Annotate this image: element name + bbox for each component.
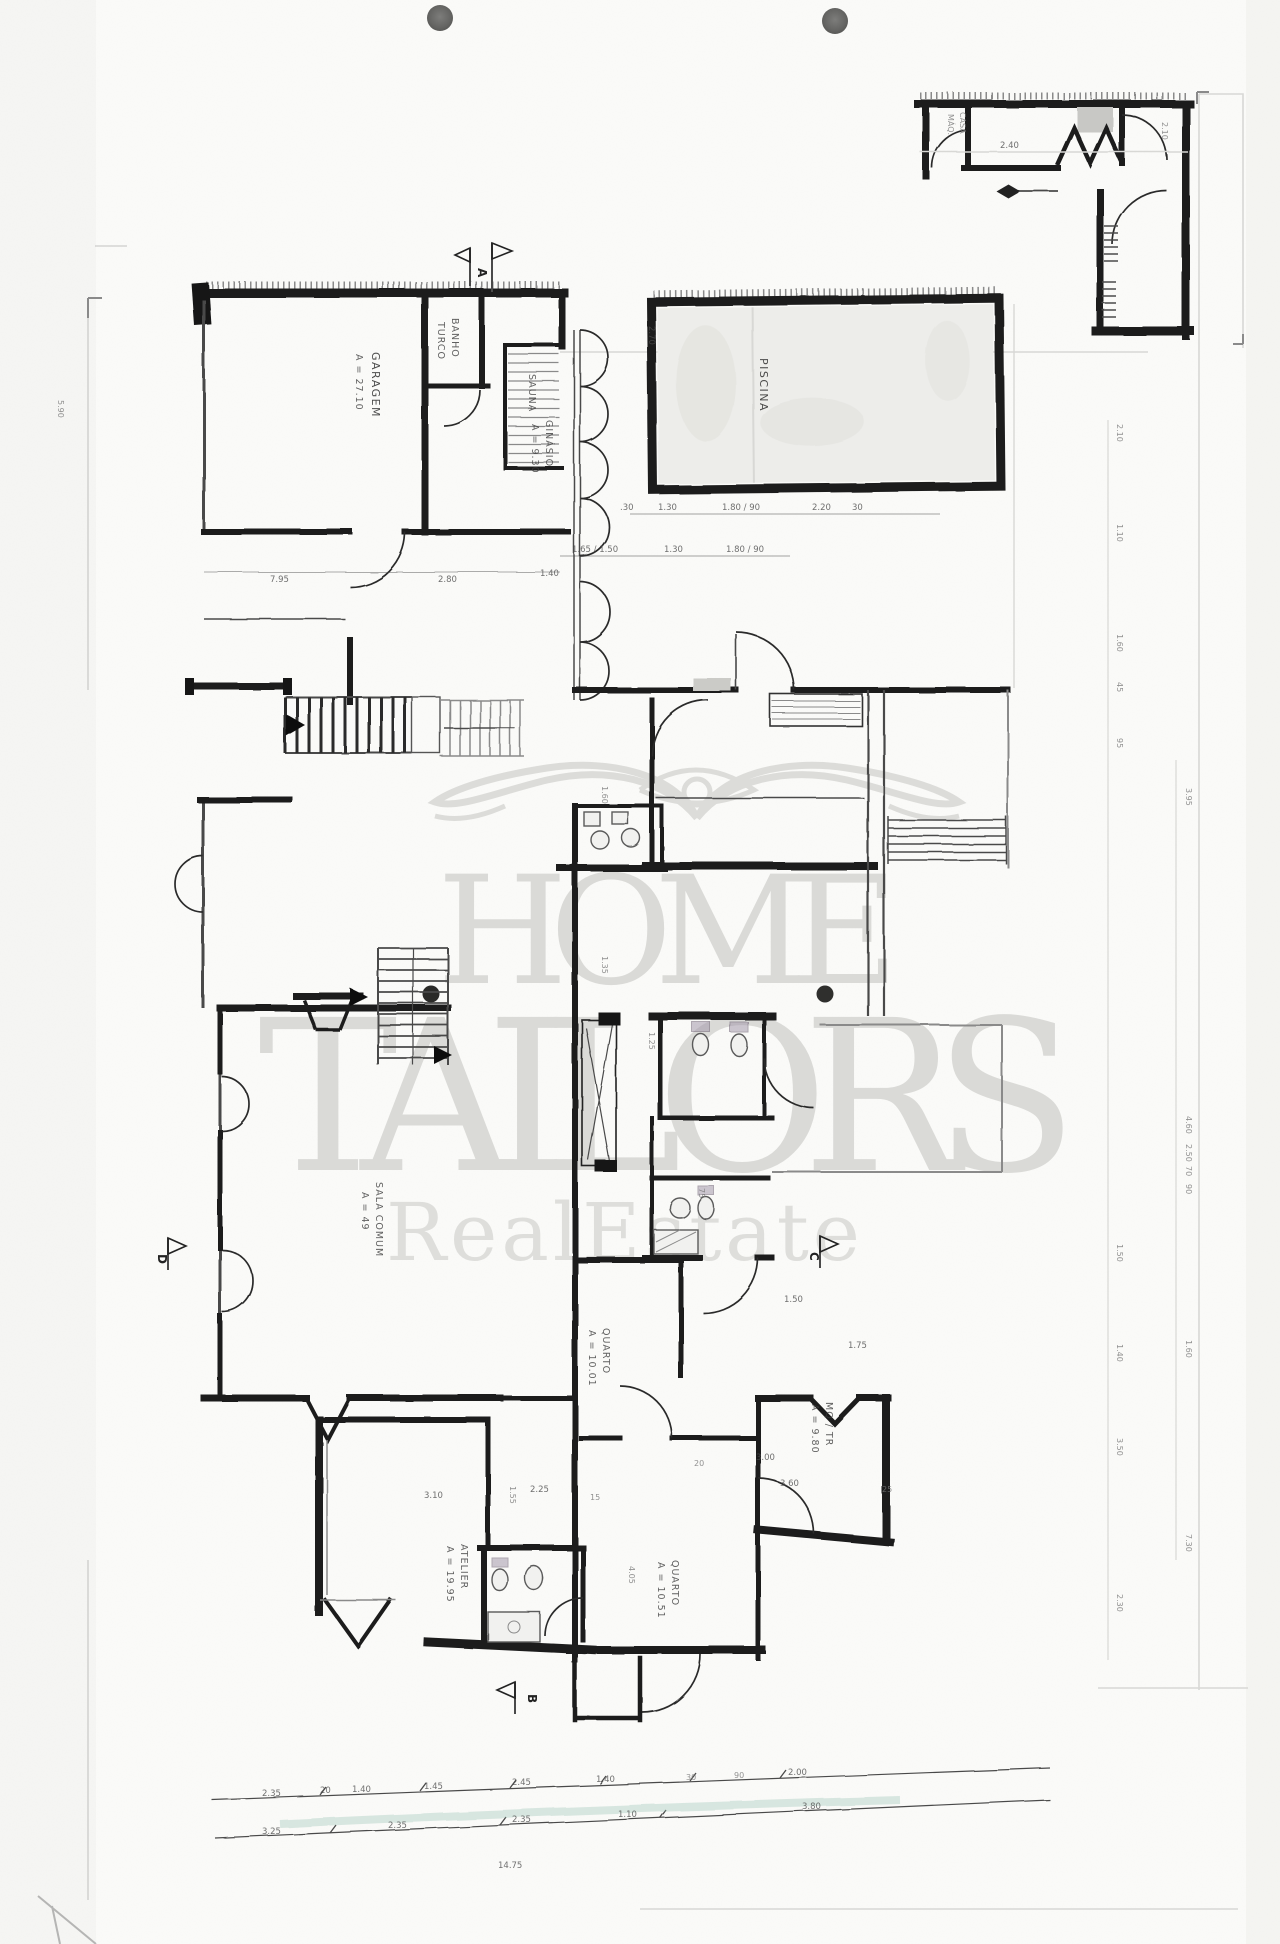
dim: 1.10 — [1115, 524, 1124, 542]
door-jamb — [598, 1012, 620, 1025]
dim: 1.40 — [352, 1785, 371, 1795]
dim: 20 — [694, 1459, 704, 1468]
room-area-atelier: A = 19.95 — [444, 1546, 455, 1603]
dim: 3.10 — [424, 1491, 443, 1501]
dim: 1.40 — [540, 569, 559, 579]
dim: 70 — [1184, 1166, 1193, 1176]
room-area-quarto-baixo: A = 10.51 — [655, 1562, 666, 1619]
dim: 3.60 — [780, 1479, 799, 1489]
dim: 2.35 — [262, 1789, 281, 1799]
section-letter: B — [525, 1694, 539, 1703]
dim: 2.00 — [788, 1768, 807, 1778]
dim: 1.40 — [596, 1775, 615, 1785]
section-letter: D — [155, 1254, 169, 1264]
dim: 1.75 — [848, 1341, 867, 1351]
dim: 3.00 — [756, 1453, 775, 1463]
section-letter: A — [475, 268, 489, 278]
dim: .30 — [620, 503, 634, 513]
toilet-fixture — [612, 812, 628, 824]
dim: 1.80 / 90 — [722, 503, 760, 513]
dim: 2.40 — [1000, 141, 1019, 151]
dim: 1.60 — [1184, 1340, 1193, 1358]
dim: 1.35 — [600, 956, 609, 974]
dim: 4.05 — [627, 1566, 636, 1584]
dim: 1.65 / 1.50 — [572, 545, 618, 555]
room-label-ginasio: GINÁSIO — [543, 420, 555, 467]
punch-hole-mid-left — [423, 986, 440, 1003]
room-label-casa-maq-2: MÁQ. — [946, 114, 957, 135]
room-label-sala-comum: SALA COMUM — [373, 1182, 384, 1257]
room-label-garagem: GARAGEM — [369, 352, 382, 418]
room-label-quarto-meio: QUARTO — [600, 1328, 611, 1374]
room-area-garagem: A = 27.10 — [353, 354, 364, 411]
dim: 2.50 — [1184, 1144, 1193, 1162]
dim: 30 — [686, 1773, 696, 1782]
toilet-fixture — [584, 812, 600, 826]
dim: 3.95 — [1184, 788, 1193, 806]
dim: 3.80 — [802, 1802, 821, 1812]
dim: 15 — [590, 1493, 600, 1502]
dim: 1.25 — [647, 1032, 656, 1050]
dim: 7.30 — [1184, 1534, 1193, 1552]
sink-fixture — [591, 831, 609, 849]
dim: 1.60 — [600, 786, 609, 804]
room-label-mq-tr: MQ / TR — [823, 1402, 834, 1446]
dim: 2.35 — [388, 1821, 407, 1831]
door-jamb — [595, 1160, 617, 1172]
punch-hole-top-right — [822, 8, 848, 34]
toilet-tank — [492, 1558, 508, 1567]
dim: 90 — [1184, 1184, 1193, 1194]
sink-fixture — [670, 1198, 690, 1218]
dim: 7.95 — [270, 575, 289, 585]
room-area-mq-tr: A = 9.80 — [809, 1404, 820, 1454]
scanned-floor-plan-page: HOME TAILORS R e a l E s t a t e — [0, 0, 1280, 1944]
dim: 1.50 — [1115, 1244, 1124, 1262]
room-area-ginasio: A = 9.30 — [529, 424, 540, 474]
floor-plan-svg: HOME TAILORS R e a l E s t a t e — [0, 0, 1280, 1944]
watermark-tagline: R e a l E s t a t e — [386, 1186, 860, 1279]
wall-end-blob — [192, 282, 212, 325]
room-label-sauna: SAUNA — [526, 374, 537, 412]
dim: 1.50 — [784, 1295, 803, 1305]
room-area-sala-comum: A = 49 — [359, 1192, 370, 1231]
room-label-atelier: ATELIER — [458, 1544, 469, 1589]
dim: 2.45 — [512, 1778, 531, 1788]
room-label-quarto-baixo: QUARTO — [669, 1560, 680, 1606]
dim: 1.55 — [508, 1486, 517, 1504]
room-label-banho-turco: BANHO — [449, 318, 460, 358]
sink-fixture — [622, 829, 640, 847]
dim: 2.25 — [530, 1485, 549, 1495]
dim: 75 — [697, 1188, 706, 1198]
dim: 3.25 — [262, 1827, 281, 1837]
dim: 1.30 — [658, 503, 677, 513]
dim: 30 — [852, 503, 863, 513]
dim: 45 — [1115, 682, 1124, 692]
dim: 4.60 — [1184, 1116, 1193, 1134]
toilet-tank — [692, 1022, 710, 1032]
dim: 2.10 — [1115, 424, 1124, 442]
toilet-tank — [730, 1022, 748, 1032]
dim-total: 14.75 — [498, 1861, 522, 1871]
toilet-bowl — [731, 1034, 747, 1056]
dim: 2.20 — [812, 503, 831, 513]
toilet-bowl — [693, 1034, 709, 1056]
dim: 25 — [882, 1485, 892, 1494]
dim: 1.30 — [664, 545, 683, 555]
dim: 2.30 — [1115, 1594, 1124, 1612]
dim: 2.10 — [1160, 122, 1169, 140]
pool — [651, 290, 1001, 490]
dim: 2.70 — [646, 326, 656, 345]
room-label-casa-maq: CASA — [958, 112, 967, 134]
punch-hole-mid-right — [817, 986, 834, 1003]
room-area-quarto-meio: A = 10.01 — [586, 1330, 597, 1387]
dim: 2.80 — [438, 575, 457, 585]
dim: 1.45 — [424, 1782, 443, 1792]
dim: 95 — [1115, 738, 1124, 748]
wall-stipple — [693, 678, 731, 691]
dim: 1.10 — [618, 1810, 637, 1820]
room-label-banho-turco-2: TURCO — [435, 321, 446, 360]
shower-base — [488, 1612, 540, 1642]
dim: 3.50 — [1115, 1438, 1124, 1456]
bar-end-cap — [283, 678, 292, 695]
dim: 1.80 / 90 — [726, 545, 764, 555]
dim: 90 — [734, 1771, 744, 1780]
dim: 1.60 — [1115, 634, 1124, 652]
dim: 20 — [320, 1786, 331, 1796]
dim: 2.35 — [512, 1815, 531, 1825]
dim: 1.40 — [1115, 1344, 1124, 1362]
toilet-bowl — [698, 1197, 714, 1219]
punch-hole-top-left — [427, 5, 453, 31]
bidet-fixture — [525, 1566, 543, 1590]
section-letter: C — [807, 1252, 821, 1261]
bar-end-cap — [185, 678, 194, 695]
toilet-bowl — [492, 1569, 508, 1591]
dim: 5.90 — [56, 400, 65, 418]
room-label-piscina: PISCINA — [757, 358, 770, 412]
